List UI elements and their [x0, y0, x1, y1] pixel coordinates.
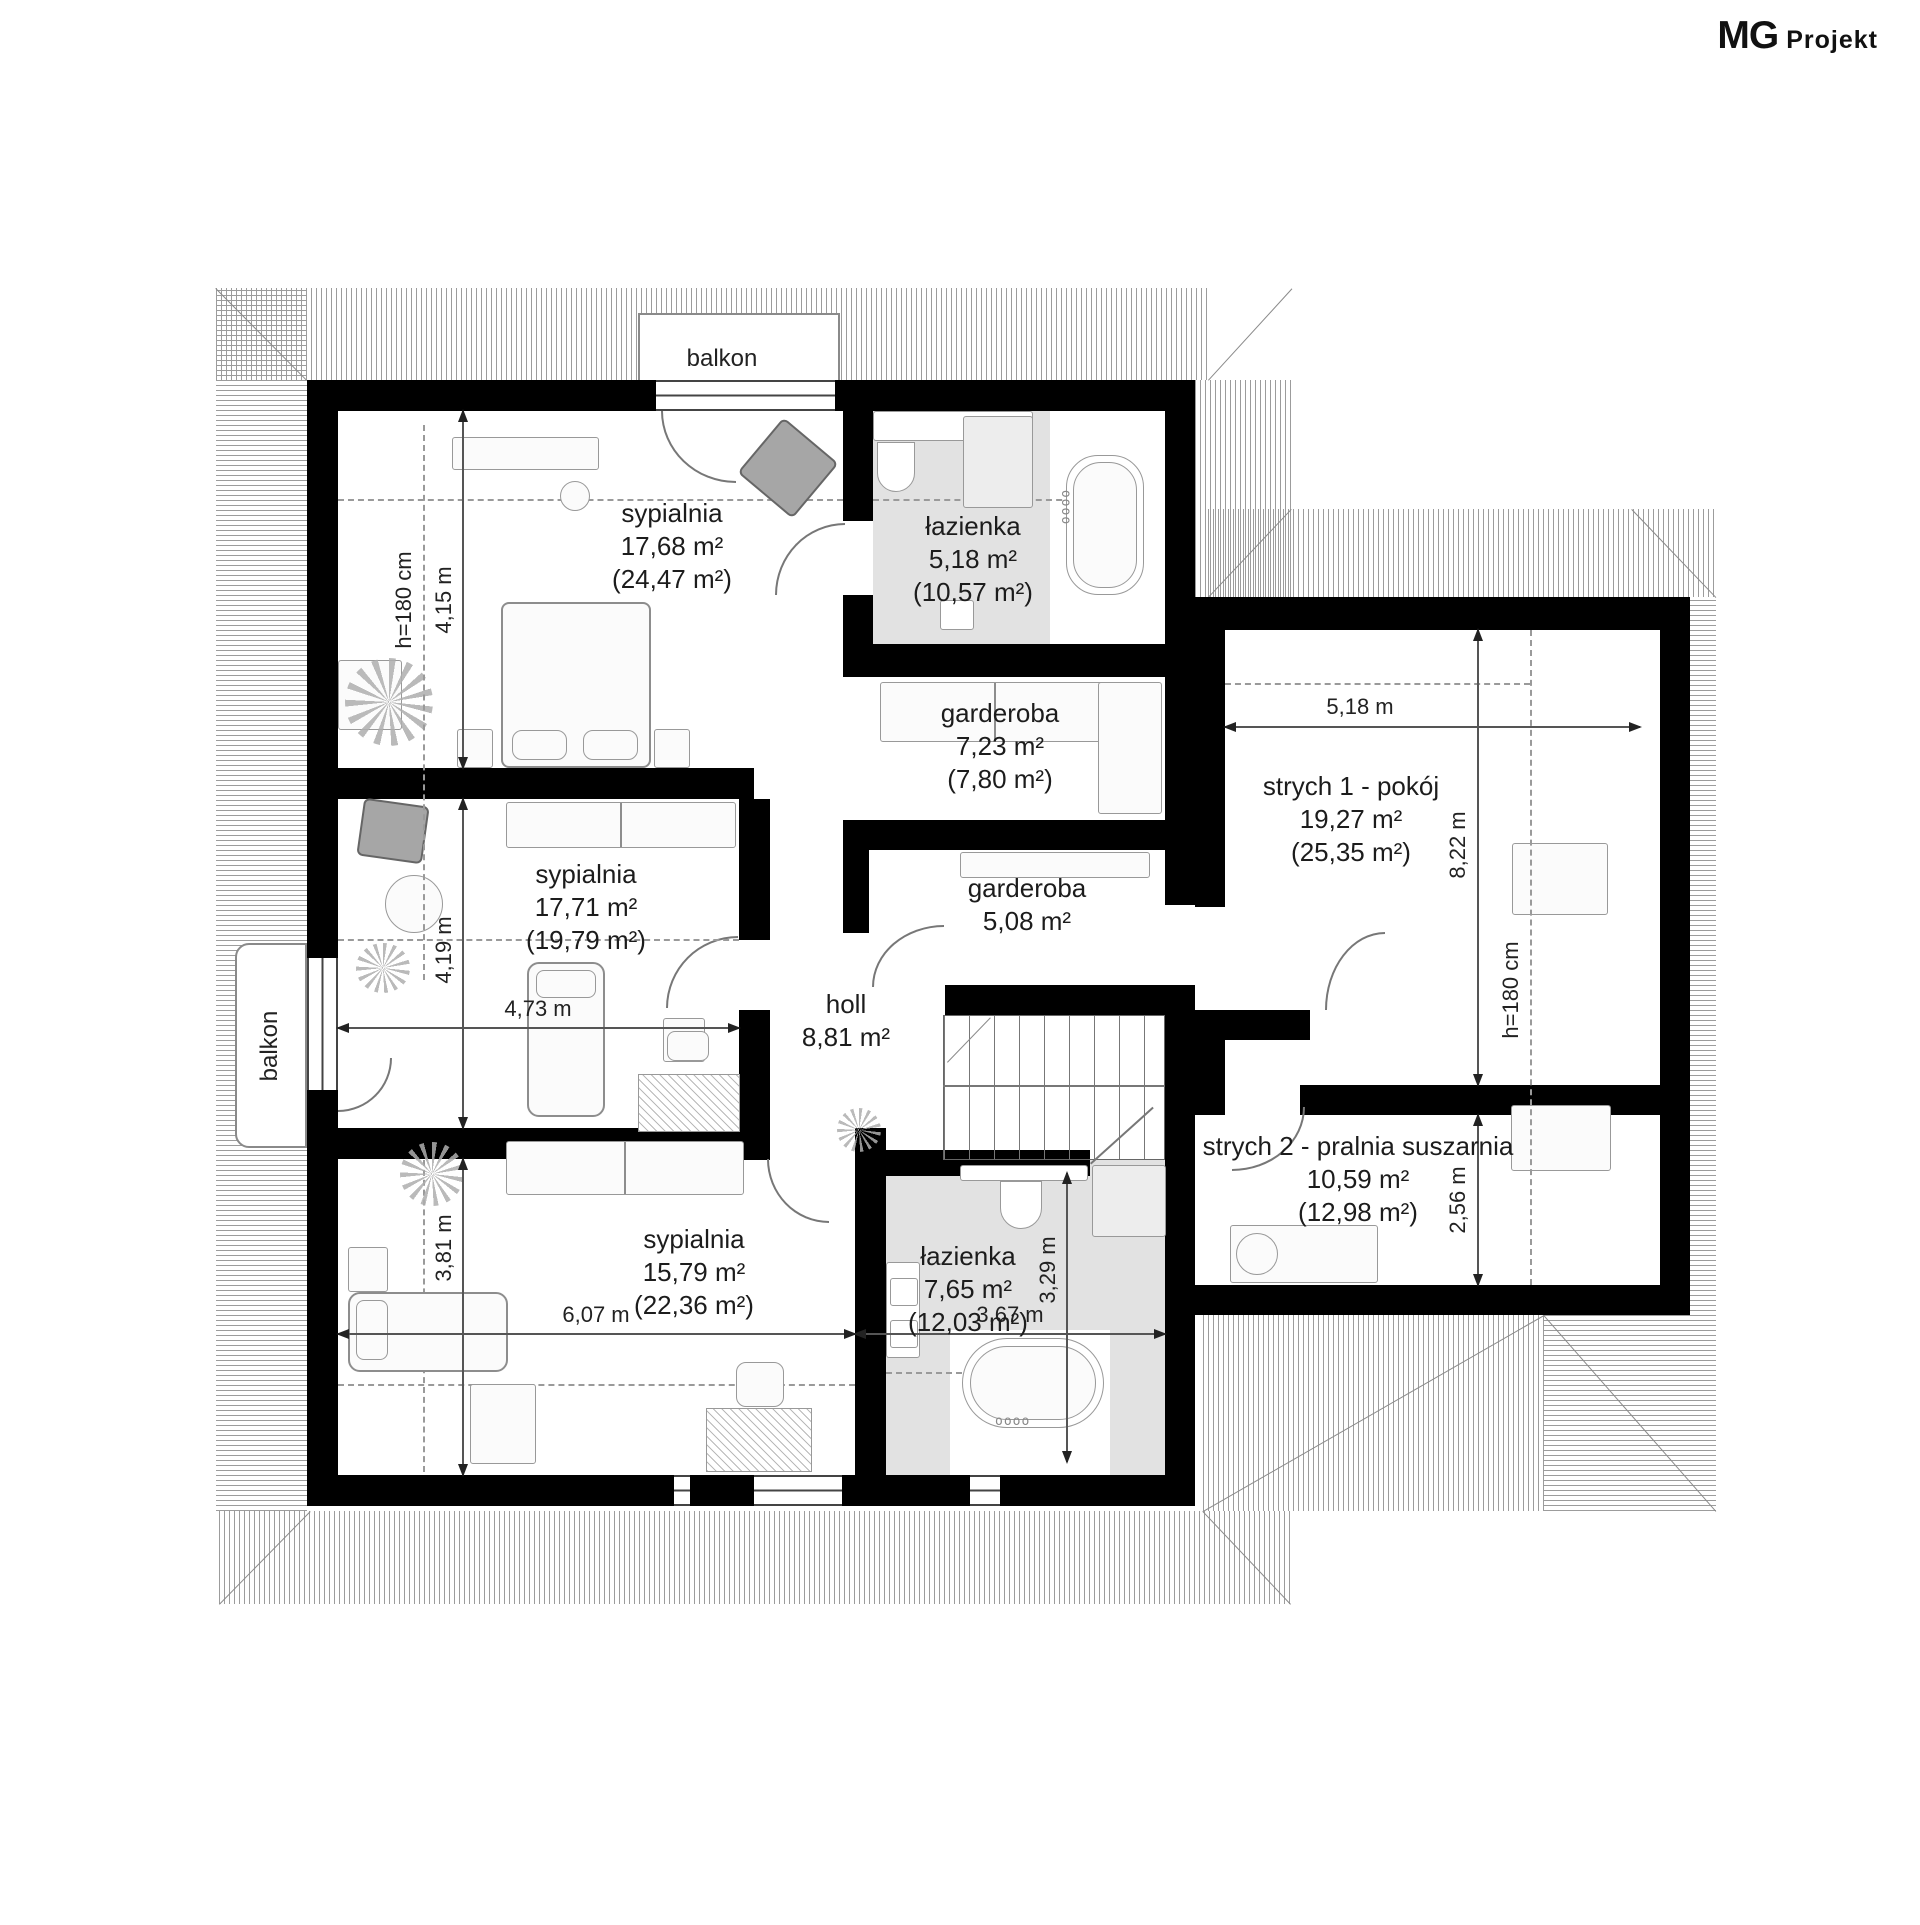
wall — [1225, 1010, 1310, 1040]
wall — [843, 850, 869, 933]
room-area: 7,23 m² — [900, 730, 1100, 763]
room-label-strych-2: strych 2 - pralnia suszarnia 10,59 m² (1… — [1198, 1130, 1518, 1229]
dimension-label: h=180 cm — [391, 551, 417, 648]
dimension-label: 4,73 m — [504, 996, 571, 1022]
roof-band-bottom — [219, 1511, 1291, 1604]
room-area: 5,08 m² — [927, 905, 1127, 938]
nightstand — [654, 729, 690, 768]
wardrobe — [506, 802, 736, 848]
wall — [843, 411, 873, 521]
wall — [307, 1475, 674, 1506]
room-area-total: (24,47 m²) — [572, 563, 772, 596]
wall — [843, 595, 873, 644]
room-area-total: (12,03 m²) — [868, 1306, 1068, 1339]
logo-mg: MG — [1717, 14, 1778, 57]
dimension-line — [338, 1027, 739, 1029]
room-area: 15,79 m² — [594, 1256, 794, 1289]
room-label-sypialnia-2: sypialnia 17,71 m² (19,79 m²) — [486, 858, 686, 957]
dimension-line — [1225, 726, 1640, 728]
plant — [400, 1142, 464, 1206]
wall — [1195, 597, 1690, 630]
room-area: 10,59 m² — [1198, 1163, 1518, 1196]
door-arc-balcony-left — [338, 1058, 392, 1112]
room-area: 17,71 m² — [486, 891, 686, 924]
window — [970, 1475, 1000, 1506]
attic-height-line — [1225, 683, 1530, 685]
room-name: strych 1 - pokój — [1221, 770, 1481, 803]
wall — [307, 380, 338, 958]
room-name: strych 2 - pralnia suszarnia — [1198, 1130, 1518, 1163]
dimension-line — [338, 1333, 855, 1335]
balcony-door-window — [656, 380, 835, 411]
rug — [638, 1074, 740, 1132]
roof-hip-line — [1208, 288, 1292, 380]
desk-chair — [736, 1362, 784, 1407]
wardrobe — [1098, 682, 1162, 814]
desk-chair — [667, 1031, 709, 1061]
dimension-label: 4,19 m — [431, 916, 457, 983]
wall — [307, 768, 754, 799]
desk — [706, 1408, 812, 1472]
roof-band-ext-top — [1208, 509, 1716, 597]
dimension-line — [462, 1159, 464, 1475]
pillow — [356, 1300, 388, 1360]
pillow — [512, 730, 567, 760]
bathtub-inner — [1073, 462, 1137, 588]
wall — [945, 985, 1195, 1015]
stairs — [943, 1015, 1165, 1160]
room-area-total: (10,57 m²) — [873, 576, 1073, 609]
balcony-left-label: balkon — [256, 1011, 284, 1082]
toilet — [1000, 1181, 1042, 1229]
plant — [345, 658, 433, 746]
room-area-total: (22,36 m²) — [594, 1289, 794, 1322]
door-arc-balcony-top — [661, 411, 736, 483]
room-label-lazienka-1: łazienka 5,18 m² (10,57 m²) — [873, 510, 1073, 609]
room-label-strych-1: strych 1 - pokój 19,27 m² (25,35 m²) — [1221, 770, 1481, 869]
room-label-sypialnia-3: sypialnia 15,79 m² (22,36 m²) — [594, 1223, 794, 1322]
wall — [835, 380, 1195, 411]
room-name: holl — [766, 988, 926, 1021]
dimension-label: 4,15 m — [431, 566, 457, 633]
pillow — [583, 730, 638, 760]
room-name: sypialnia — [572, 497, 772, 530]
dimension-label: 5,18 m — [1326, 694, 1393, 720]
wall — [307, 380, 656, 411]
room-area-total: (25,35 m²) — [1221, 836, 1481, 869]
window — [754, 1475, 842, 1506]
door-arc-bedroom3 — [767, 1159, 829, 1223]
balcony-top-label: balkon — [687, 345, 758, 373]
rug — [470, 1384, 536, 1464]
shower — [1092, 1165, 1166, 1237]
dresser — [452, 437, 599, 470]
storage-box — [1512, 843, 1608, 915]
wall — [1195, 1010, 1225, 1085]
floor-plan: balkon balkon — [0, 0, 1920, 1925]
wall — [690, 1475, 754, 1506]
room-area: 19,27 m² — [1221, 803, 1481, 836]
faucet-icon: oooo — [995, 1414, 1030, 1429]
window — [674, 1475, 690, 1506]
room-area: 5,18 m² — [873, 543, 1073, 576]
room-area-total: (12,98 m²) — [1198, 1196, 1518, 1229]
wall — [1165, 1085, 1225, 1115]
stairs-divider — [943, 1085, 1165, 1087]
logo: MGProjekt — [1717, 14, 1878, 58]
room-area: 17,68 m² — [572, 530, 772, 563]
wall — [1660, 597, 1690, 1315]
door-arc-bathroom1 — [775, 523, 845, 595]
dimension-line — [462, 799, 464, 1128]
wall — [843, 644, 1195, 677]
wall — [1165, 1010, 1195, 1085]
room-label-sypialnia-1: sypialnia 17,68 m² (24,47 m²) — [572, 497, 772, 596]
shelf — [348, 1247, 388, 1292]
room-name: łazienka — [868, 1240, 1068, 1273]
room-name: sypialnia — [594, 1223, 794, 1256]
room-label-garderoba-2: garderoba 5,08 m² — [927, 872, 1127, 938]
dimension-line — [462, 411, 464, 768]
wall — [843, 820, 1195, 850]
shower — [963, 416, 1033, 508]
room-name: garderoba — [927, 872, 1127, 905]
room-label-holl: holl 8,81 m² — [766, 988, 926, 1054]
balcony-door-window — [307, 958, 338, 1090]
room-name: garderoba — [900, 697, 1100, 730]
bathtub-inner — [970, 1346, 1096, 1420]
armchair — [356, 798, 429, 865]
wall — [1195, 1285, 1690, 1315]
door-arc-strych1 — [1325, 932, 1385, 1010]
wall — [739, 799, 770, 940]
room-area: 8,81 m² — [766, 1021, 926, 1054]
room-name: łazienka — [873, 510, 1073, 543]
room-name: sypialnia — [486, 858, 686, 891]
room-area: 7,65 m² — [868, 1273, 1068, 1306]
attic-height-line — [1530, 630, 1532, 1285]
wardrobe — [506, 1141, 744, 1195]
dimension-label: 3,81 m — [431, 1214, 457, 1281]
washing-machine — [1236, 1233, 1278, 1275]
wall — [1165, 1115, 1195, 1506]
plant — [837, 1108, 881, 1152]
logo-projekt: Projekt — [1786, 26, 1878, 54]
room-label-lazienka-2: łazienka 7,65 m² (12,03 m²) — [868, 1240, 1068, 1339]
storage-box — [1511, 1105, 1611, 1171]
roof-band-left — [216, 288, 307, 1511]
pillow — [536, 970, 596, 998]
room-label-garderoba-1: garderoba 7,23 m² (7,80 m²) — [900, 697, 1100, 796]
dimension-label: h=180 cm — [1498, 941, 1524, 1038]
toilet — [877, 442, 915, 492]
wall — [1300, 1085, 1690, 1115]
room-area-total: (19,79 m²) — [486, 924, 686, 957]
attic-height-line — [423, 425, 425, 980]
room-area-total: (7,80 m²) — [900, 763, 1100, 796]
plant — [356, 943, 410, 993]
